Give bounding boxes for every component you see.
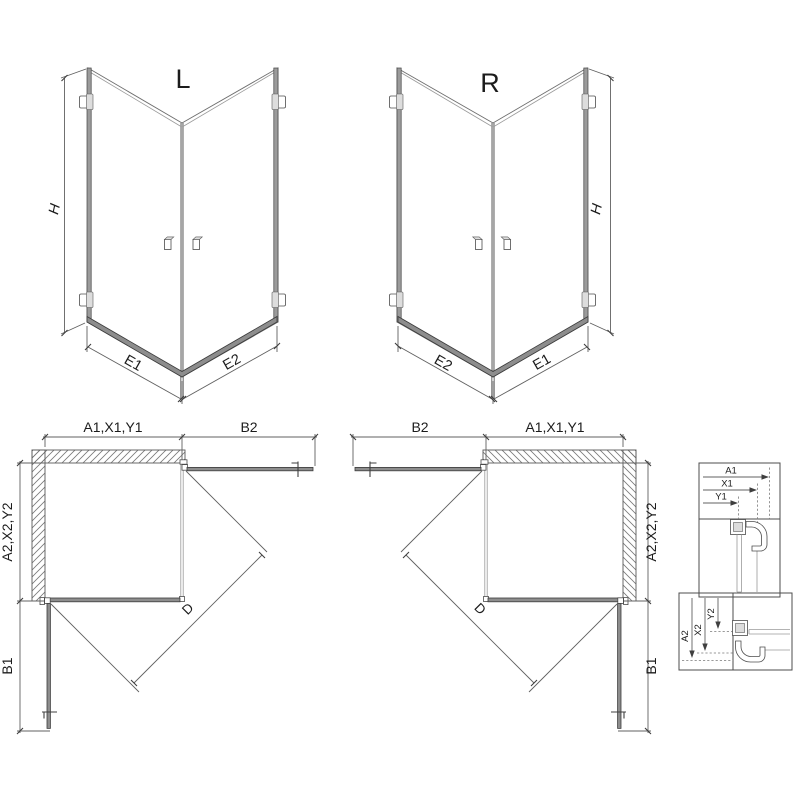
detail-a2-label: A2	[680, 630, 691, 642]
plan-l-diagonal-label: D	[179, 600, 197, 618]
plan-l-sidedoor-label: B1	[0, 657, 15, 674]
plan-r-diagonal-label: D	[471, 600, 489, 618]
detail-y1-label: Y1	[715, 492, 727, 503]
variant-label-right: R	[480, 68, 500, 98]
plan-l-door-label: B2	[240, 419, 257, 435]
perspective-view-right	[390, 68, 615, 404]
detail-box-vertical: A2 X2 Y2	[679, 593, 792, 670]
profile-section-icon	[733, 621, 791, 663]
plan-view-left	[17, 434, 318, 734]
side-label-r-left: E2	[431, 352, 454, 375]
variant-label-left: L	[175, 64, 190, 94]
plan-r-door-label: B2	[411, 419, 428, 435]
side-label-r-right: E1	[530, 351, 553, 374]
plan-r-sidedoor-label: B1	[643, 657, 659, 674]
height-label-right: H	[588, 202, 606, 216]
side-label-l-left: E1	[121, 352, 144, 375]
profile-section-icon	[731, 520, 768, 593]
detail-a1-label: A1	[725, 466, 737, 477]
plan-r-width-label: A1,X1,Y1	[525, 419, 584, 435]
plan-l-width-label: A1,X1,Y1	[83, 419, 142, 435]
detail-x1-label: X1	[721, 479, 733, 490]
plan-l-depth-label: A2,X2,Y2	[0, 502, 15, 561]
detail-y2-label: Y2	[706, 608, 717, 620]
perspective-view-left	[61, 68, 286, 404]
detail-box-horizontal: A1 X1 Y1	[699, 463, 780, 597]
detail-x2-label: X2	[693, 624, 704, 636]
height-label-left: H	[46, 202, 64, 216]
side-label-l-right: E2	[220, 351, 243, 374]
plan-view-right	[350, 434, 651, 734]
technical-drawing-canvas: L R H H E1 E2 E2 E1 A1,X1,Y1 B2 A2,X2,Y2…	[0, 0, 800, 800]
plan-r-depth-label: A2,X2,Y2	[643, 502, 659, 561]
drawing-sheet: L R H H E1 E2 E2 E1 A1,X1,Y1 B2 A2,X2,Y2…	[0, 0, 800, 800]
